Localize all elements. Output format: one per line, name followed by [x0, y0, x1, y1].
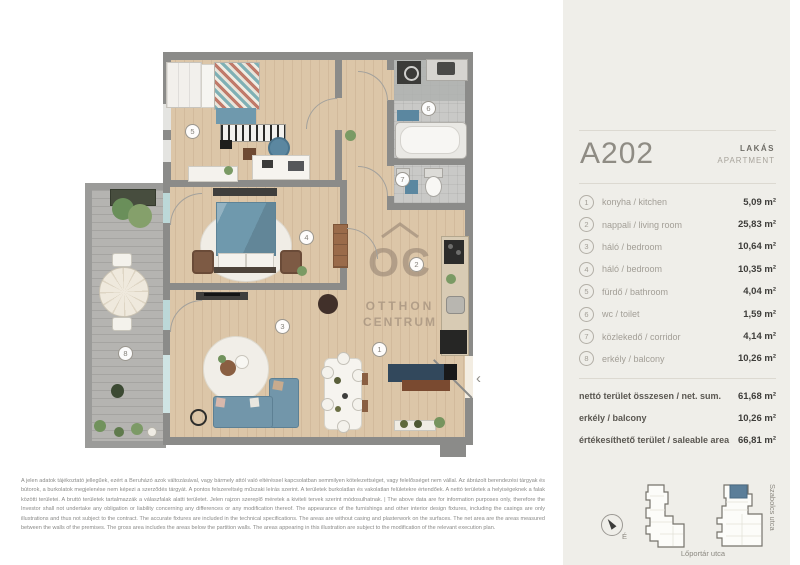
room-number-badge: 6 [579, 307, 594, 322]
cooktop-burner-2 [456, 250, 461, 255]
legal-disclaimer-text: A jelen adatok tájékoztató jellegűek, ez… [21, 477, 545, 534]
living-window [163, 355, 170, 413]
wall-room5-right-a [335, 52, 342, 98]
sofa-pillow-3 [272, 380, 283, 391]
siteplan-highlight-unit [730, 485, 747, 498]
room-label: erkély / balcony [602, 354, 665, 364]
room-label: háló / bedroom [602, 242, 662, 252]
room-marker-5: 5 [185, 124, 200, 139]
shelf-console [333, 224, 348, 268]
entry-plant-1 [400, 420, 408, 428]
wall-wc-bottom [387, 203, 473, 210]
room-marker-3: 3 [275, 319, 290, 334]
rug-room5 [216, 108, 256, 124]
wardrobe [166, 62, 202, 108]
room-number-badge: 7 [579, 329, 594, 344]
unit-id: A202 [580, 137, 654, 171]
tv-living [204, 293, 240, 296]
cooktop [444, 240, 464, 264]
room-area: 4,14 m² [743, 331, 776, 342]
cooktop-burner-1 [448, 244, 453, 249]
table-decor-2 [342, 393, 348, 399]
dining-chair-5 [337, 352, 350, 365]
compass-north-label: É [622, 532, 627, 541]
dining-chair-6 [337, 420, 350, 433]
room-marker-7: 7 [395, 172, 410, 187]
corridor-plant [345, 130, 356, 141]
table-decor-3 [335, 406, 341, 412]
bedroom4-plant [297, 266, 307, 276]
compass-needle [605, 517, 616, 529]
entry-chevron-icon: ‹ [476, 370, 481, 387]
black-cabinet [220, 140, 232, 149]
laptop [262, 160, 273, 168]
vanity-plant [224, 166, 233, 175]
room-label: közlekedő / corridor [602, 332, 681, 342]
bathroom-sink [437, 62, 455, 75]
room-number-badge: 3 [579, 239, 594, 254]
divider-top [579, 130, 776, 131]
floor-lamp [190, 409, 207, 426]
floorplan-sheet: ‹ [0, 0, 800, 565]
wall-bedroom4-right-a [340, 180, 347, 227]
bedroom4-balcony-door [163, 193, 170, 223]
room-label: wc / toilet [602, 309, 640, 319]
room-label: nappali / living room [602, 220, 682, 230]
coffee-table-tray [235, 355, 249, 369]
unit-type-hu: LAKÁS [717, 144, 775, 153]
dining-chair-2 [321, 398, 334, 411]
living-balcony-door [163, 300, 170, 330]
total-balcony: erkély / balcony 10,26 m² [579, 407, 776, 429]
room-number-badge: 2 [579, 217, 594, 232]
balcony-bush-2 [128, 204, 152, 228]
room-row-living: 2 nappali / living room 25,83 m² [579, 213, 776, 235]
unit-info-panel: A202 LAKÁS APARTMENT 1 konyha / kitchen … [563, 0, 790, 565]
room-area: 5,09 m² [743, 197, 776, 208]
entry-plant-3 [434, 417, 445, 428]
room-marker-8: 8 [118, 346, 133, 361]
total-label: erkély / balcony [579, 413, 647, 423]
room-row-balcony: 8 erkély / balcony 10,26 m² [579, 348, 776, 370]
balcony-chair-bottom [112, 317, 132, 331]
street-label-right: Szabolcs utca [768, 484, 777, 531]
room-row-bedroom-4: 4 háló / bedroom 10,35 m² [579, 258, 776, 280]
room-label: fürdő / bathroom [602, 287, 668, 297]
room-marker-1: 1 [372, 342, 387, 357]
room-area: 10,64 m² [738, 241, 776, 252]
rug-living [203, 336, 269, 402]
total-net-sum: nettó terület összesen / net. sum. 61,68… [579, 385, 776, 407]
balcony-pot [147, 427, 157, 437]
otthon-centrum-watermark: OC OTTHON CENTRUM [360, 222, 440, 329]
floorplan-drawing: ‹ [0, 0, 556, 470]
room-number-badge: 8 [579, 351, 594, 366]
room-number-badge: 5 [579, 284, 594, 299]
kitchen-tall-unit [440, 330, 467, 354]
room-area: 1,59 m² [743, 309, 776, 320]
total-saleable: értékesíthető terület / saleable area 66… [579, 429, 776, 451]
balcony-dark-plant [111, 384, 124, 398]
bed-headboard-bedroom4 [214, 267, 276, 273]
table-decor-1 [334, 377, 341, 384]
bed-duvet-room5 [214, 62, 260, 110]
wall-bedroom4-bottom [163, 283, 347, 290]
total-value: 10,26 m² [738, 413, 776, 424]
media-sideboard-brown [402, 380, 450, 391]
room-number-badge: 1 [579, 195, 594, 210]
balcony-wall-bottom [85, 441, 166, 448]
room-list: 1 konyha / kitchen 5,09 m² 2 nappali / l… [579, 191, 776, 370]
kitchen-sink [446, 296, 465, 314]
exterior-shaft-stub [440, 443, 466, 457]
room-label: háló / bedroom [602, 264, 662, 274]
total-value: 66,81 m² [738, 435, 776, 446]
wall-bottom [163, 437, 473, 445]
room-label: konyha / kitchen [602, 197, 667, 207]
bedroom5-window-2 [163, 140, 171, 162]
total-label: nettó terület összesen / net. sum. [579, 391, 721, 401]
desk-monitor [288, 161, 304, 171]
divider-header [579, 183, 776, 184]
coffee-table-plant [218, 355, 226, 363]
street-label-bottom: Lőportár utca [633, 549, 773, 558]
room-marker-2: 2 [409, 257, 424, 272]
total-value: 61,68 m² [738, 391, 776, 402]
compass-icon [601, 514, 623, 536]
divider-totals [579, 378, 776, 379]
room-row-bedroom-3: 3 háló / bedroom 10,64 m² [579, 236, 776, 258]
parasol [99, 267, 149, 317]
bath-mat [397, 110, 419, 121]
room-marker-6: 6 [421, 101, 436, 116]
media-sideboard-black [444, 364, 457, 380]
room-row-bathroom: 5 fürdő / bathroom 4,04 m² [579, 281, 776, 303]
room-row-toilet: 6 wc / toilet 1,59 m² [579, 303, 776, 325]
siteplan: É Lőportár utca Szabolcs utca [563, 470, 790, 565]
wall-corridor-right-b [387, 100, 394, 166]
bed-pillow-room5 [201, 64, 215, 108]
sofa-pillow-2 [250, 398, 260, 408]
wall-bath-wc [394, 158, 466, 165]
room-number-badge: 4 [579, 262, 594, 277]
balcony-chair-top [112, 253, 132, 267]
watermark-otthon: OTTHON [360, 299, 440, 313]
unit-type-en: APARTMENT [717, 156, 775, 165]
watermark-centrum: CENTRUM [360, 315, 440, 329]
wall-corridor-right-a [387, 52, 394, 70]
room-row-corridor: 7 közlekedő / corridor 4,14 m² [579, 325, 776, 347]
armchair-left [192, 250, 214, 274]
pouf [318, 294, 338, 314]
tv-bench-bedroom4 [213, 188, 277, 196]
dining-chair-pad-1 [362, 373, 368, 385]
watermark-roof-icon [378, 222, 422, 238]
dining-chair-pad-2 [362, 400, 368, 412]
room-area: 10,35 m² [738, 264, 776, 275]
washing-machine-door [404, 66, 419, 81]
siteplan-building-right [716, 484, 768, 548]
room-row-kitchen: 1 konyha / kitchen 5,09 m² [579, 191, 776, 213]
kitchen-plant [446, 274, 456, 284]
wall-room5-right-b [335, 130, 342, 187]
balcony-plant-1 [94, 420, 106, 432]
entry-plant-2 [414, 420, 422, 428]
sofa-pillow-1 [215, 397, 225, 407]
room-area: 10,26 m² [738, 353, 776, 364]
balcony-wall-left [85, 183, 92, 448]
bathtub-basin [400, 126, 460, 154]
dining-chair-1 [321, 366, 334, 379]
room-area: 4,04 m² [743, 286, 776, 297]
balcony-plant-2 [114, 427, 124, 437]
unit-type: LAKÁS APARTMENT [717, 144, 775, 165]
balcony-plant-3 [131, 423, 143, 435]
totals-list: nettó terület összesen / net. sum. 61,68… [579, 385, 776, 451]
bed-duvet-bedroom4 [216, 202, 276, 256]
room-marker-4: 4 [299, 230, 314, 245]
siteplan-building-left [638, 484, 693, 548]
total-label: értékesíthető terület / saleable area [579, 435, 729, 445]
room-area: 25,83 m² [738, 219, 776, 230]
toilet-bowl [425, 176, 442, 197]
